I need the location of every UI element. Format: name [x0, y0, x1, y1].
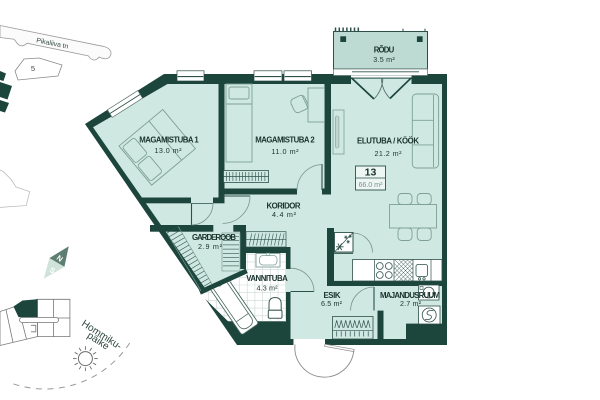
svg-text:MAGAMISTUBA 2: MAGAMISTUBA 2: [255, 136, 315, 145]
svg-text:13.0 m²: 13.0 m²: [155, 146, 183, 155]
svg-text:MAGAMISTUBA 1: MAGAMISTUBA 1: [139, 136, 199, 145]
svg-text:2.7 m²: 2.7 m²: [400, 299, 422, 308]
svg-text:4.4 m²: 4.4 m²: [272, 210, 297, 219]
svg-text:13: 13: [365, 167, 377, 179]
svg-text:21.2 m²: 21.2 m²: [375, 149, 403, 158]
svg-text:RÕDU: RÕDU: [374, 46, 395, 55]
svg-text:2.9 m²: 2.9 m²: [198, 242, 223, 251]
svg-text:66.0 m²: 66.0 m²: [359, 180, 384, 189]
svg-text:GARDEROOB: GARDEROOB: [192, 233, 236, 242]
svg-text:6.5 m²: 6.5 m²: [321, 299, 343, 308]
svg-text:5: 5: [31, 64, 35, 73]
svg-text:VANNITUBA: VANNITUBA: [246, 274, 288, 283]
svg-text:11.0 m²: 11.0 m²: [272, 147, 300, 156]
svg-text:3.5 m²: 3.5 m²: [373, 55, 395, 64]
svg-text:ELUTUBA / KÖÖK: ELUTUBA / KÖÖK: [357, 137, 419, 146]
svg-text:4.3 m²: 4.3 m²: [257, 284, 279, 293]
